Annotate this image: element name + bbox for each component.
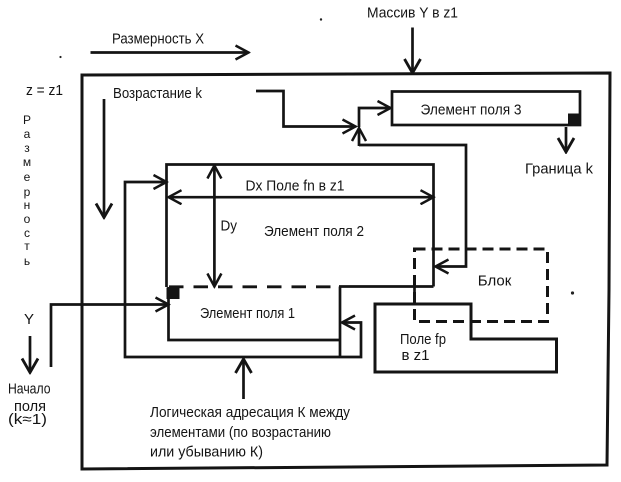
- svg-text:Элемент поля 3: Элемент поля 3: [421, 102, 522, 119]
- svg-text:Dy: Dy: [221, 218, 238, 235]
- svg-text:Массив Y в z1: Массив Y в z1: [367, 5, 458, 22]
- svg-text:(k≈1): (k≈1): [8, 411, 47, 428]
- svg-text:Начало: Начало: [8, 381, 51, 398]
- svg-text:р: р: [24, 185, 31, 199]
- svg-text:в z1: в z1: [402, 347, 430, 364]
- svg-text:т: т: [24, 239, 30, 253]
- svg-text:Логическая адресация К между: Логическая адресация К между: [150, 404, 350, 421]
- svg-text:Элемент поля 2: Элемент поля 2: [264, 223, 364, 240]
- svg-text:Блок: Блок: [478, 273, 512, 290]
- svg-text:Y: Y: [24, 311, 34, 328]
- svg-text:м: м: [23, 155, 31, 169]
- svg-text:Элемент поля 1: Элемент поля 1: [200, 305, 295, 322]
- svg-text:Р: Р: [23, 113, 31, 127]
- svg-text:Возрастание k: Возрастание k: [113, 85, 202, 102]
- svg-text:а: а: [24, 127, 31, 141]
- svg-text:с: с: [24, 226, 30, 240]
- svg-text:з: з: [24, 141, 30, 155]
- svg-text:Граница k: Граница k: [525, 161, 593, 178]
- svg-text:Размерность X: Размерность X: [112, 31, 204, 48]
- svg-text:о: о: [24, 212, 31, 226]
- svg-text:элементами (по возрастанию: элементами (по возрастанию: [150, 424, 331, 441]
- svg-text:е: е: [24, 170, 31, 184]
- svg-text:Поле fp: Поле fp: [400, 331, 446, 348]
- svg-text:или убыванию К): или убыванию К): [150, 444, 263, 461]
- svg-text:Dx Поле fn в z1: Dx Поле fn в z1: [246, 178, 345, 195]
- svg-text:ь: ь: [24, 254, 30, 268]
- svg-text:z = z1: z = z1: [26, 82, 63, 99]
- svg-text:н: н: [24, 198, 31, 212]
